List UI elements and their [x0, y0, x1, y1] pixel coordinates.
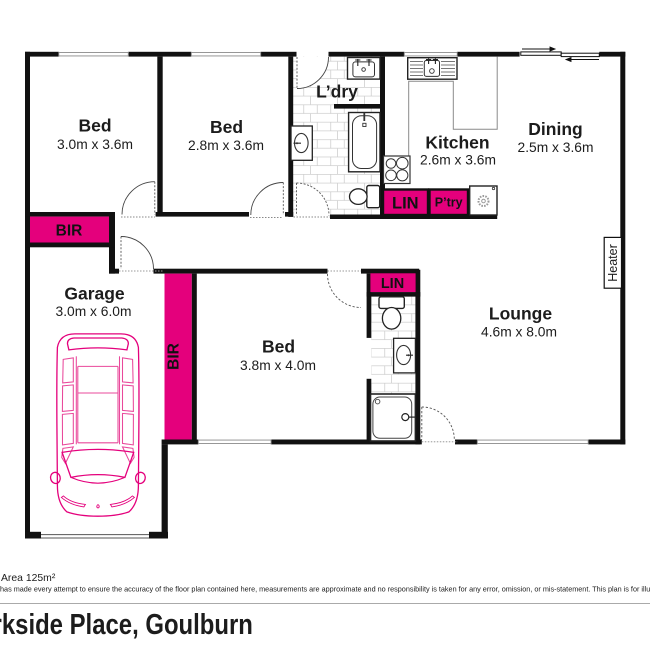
svg-text:2.8m x 3.6m: 2.8m x 3.6m [188, 138, 264, 153]
svg-text:L’dry: L’dry [316, 82, 358, 102]
svg-text:Bed: Bed [78, 116, 111, 136]
svg-text:Bed: Bed [210, 117, 243, 137]
svg-text:3.0m x 3.6m: 3.0m x 3.6m [57, 137, 133, 152]
svg-text:Area 125m²: Area 125m² [1, 573, 56, 584]
svg-text:Dining: Dining [528, 119, 582, 139]
svg-text:Parkside Place, Goulburn: Parkside Place, Goulburn [0, 609, 253, 641]
svg-text:BIR: BIR [166, 343, 183, 370]
svg-text:3.8m x 4.0m: 3.8m x 4.0m [240, 358, 316, 373]
svg-text:Kitchen: Kitchen [425, 133, 489, 153]
svg-text:BIR: BIR [56, 223, 83, 240]
svg-text:P’try: P’try [435, 196, 463, 210]
svg-text:Heater: Heater [606, 244, 620, 282]
svg-text:LIN: LIN [392, 195, 419, 213]
svg-text:2.6m x 3.6m: 2.6m x 3.6m [420, 153, 496, 168]
svg-text:Bed: Bed [262, 337, 295, 357]
svg-text:LIN: LIN [381, 276, 404, 292]
svg-text:Garage: Garage [64, 284, 125, 304]
svg-text:4.6m x 8.0m: 4.6m x 8.0m [481, 325, 557, 340]
svg-text:3.0m x 6.0m: 3.0m x 6.0m [56, 304, 132, 319]
svg-text:2.5m x 3.6m: 2.5m x 3.6m [518, 140, 594, 155]
svg-text:has made every attempt to ensu: has made every attempt to ensure the acc… [0, 585, 650, 594]
svg-text:Lounge: Lounge [489, 304, 552, 324]
